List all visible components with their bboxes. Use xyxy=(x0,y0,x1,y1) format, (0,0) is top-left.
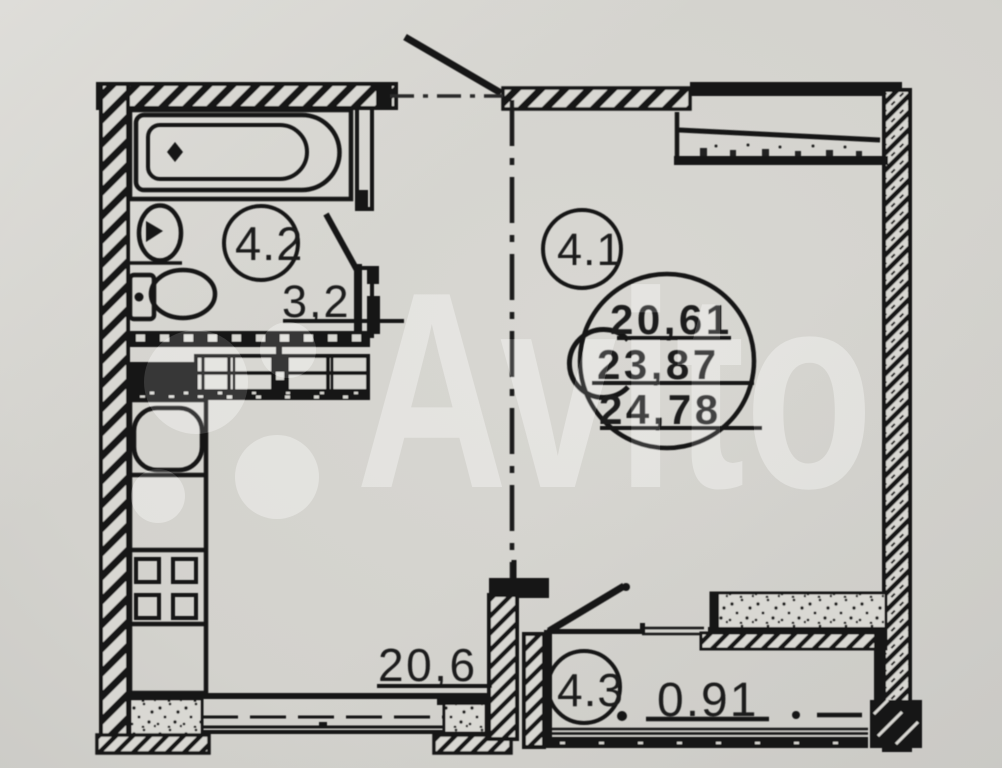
svg-text:4.2: 4.2 xyxy=(235,217,303,270)
svg-text:4.3: 4.3 xyxy=(557,664,624,716)
svg-text:Avito: Avito xyxy=(356,235,873,547)
svg-text:20,6: 20,6 xyxy=(378,639,478,691)
